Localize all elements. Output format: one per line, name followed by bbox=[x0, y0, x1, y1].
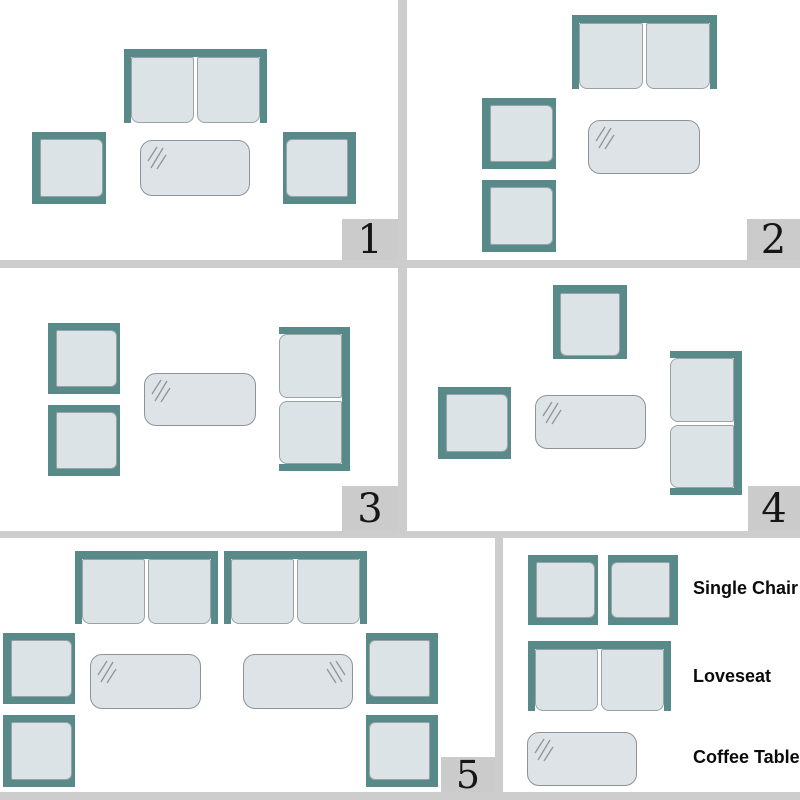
loveseat-frame bbox=[528, 641, 671, 649]
loveseat-cushion bbox=[231, 559, 294, 624]
legend-label-loveseat: Loveseat bbox=[693, 666, 771, 687]
loveseat-cushion bbox=[646, 23, 710, 89]
loveseat-cushion bbox=[82, 559, 145, 624]
panel-2-number-badge: 2 bbox=[747, 219, 800, 260]
loveseat bbox=[279, 327, 350, 471]
panel-1-number-badge: 1 bbox=[342, 219, 398, 260]
chair-cushion bbox=[446, 394, 508, 452]
single-chair bbox=[48, 405, 120, 476]
chair-cushion bbox=[490, 187, 553, 245]
loveseat-frame bbox=[572, 15, 579, 89]
loveseat-frame bbox=[260, 49, 267, 123]
chair-cushion bbox=[11, 722, 72, 780]
coffee-table bbox=[140, 140, 250, 196]
loveseat-cushion bbox=[670, 358, 734, 422]
glass-shine-icon bbox=[95, 658, 125, 686]
single-chair bbox=[528, 555, 598, 625]
loveseat-frame bbox=[664, 641, 671, 711]
loveseat-frame bbox=[710, 15, 717, 89]
single-chair bbox=[553, 285, 627, 359]
single-chair bbox=[482, 98, 556, 169]
loveseat bbox=[124, 49, 267, 123]
single-chair bbox=[32, 132, 106, 204]
coffee-table bbox=[588, 120, 700, 174]
coffee-table bbox=[527, 732, 637, 786]
loveseat-cushion bbox=[670, 425, 734, 489]
glass-shine-icon bbox=[318, 658, 348, 686]
chair-cushion bbox=[286, 139, 348, 197]
loveseat-frame bbox=[670, 488, 742, 495]
loveseat-frame bbox=[124, 49, 131, 123]
chair-cushion bbox=[56, 412, 117, 469]
coffee-table bbox=[243, 654, 353, 709]
loveseat-frame bbox=[670, 351, 742, 358]
legend-label-single-chair: Single Chair bbox=[693, 578, 798, 599]
single-chair bbox=[366, 715, 438, 787]
loveseat-frame bbox=[75, 551, 82, 624]
glass-shine-icon bbox=[145, 144, 175, 172]
loveseat-frame bbox=[279, 464, 350, 471]
loveseat bbox=[75, 551, 218, 624]
loveseat-frame bbox=[124, 49, 267, 57]
panel-5-number-badge: 5 bbox=[441, 757, 495, 792]
glass-shine-icon bbox=[532, 736, 562, 764]
single-chair bbox=[48, 323, 120, 394]
chair-cushion bbox=[369, 722, 430, 780]
single-chair bbox=[366, 633, 438, 704]
single-chair bbox=[608, 555, 678, 625]
loveseat-frame bbox=[224, 551, 367, 559]
loveseat bbox=[224, 551, 367, 624]
chair-cushion bbox=[490, 105, 553, 162]
chair-cushion bbox=[11, 640, 72, 697]
single-chair bbox=[283, 132, 356, 204]
single-chair bbox=[482, 180, 556, 252]
loveseat-cushion bbox=[297, 559, 360, 624]
loveseat bbox=[572, 15, 717, 89]
loveseat-cushion bbox=[279, 401, 342, 465]
glass-shine-icon bbox=[540, 399, 570, 427]
panel-4-number-badge: 4 bbox=[748, 486, 800, 531]
loveseat-frame bbox=[224, 551, 231, 624]
panel-3-number-badge: 3 bbox=[342, 486, 398, 531]
loveseat-cushion bbox=[148, 559, 211, 624]
loveseat-frame bbox=[342, 327, 350, 471]
chair-cushion bbox=[611, 562, 670, 618]
single-chair bbox=[3, 633, 75, 704]
glass-shine-icon bbox=[149, 377, 179, 405]
loveseat-cushion bbox=[601, 649, 664, 711]
loveseat-cushion bbox=[197, 57, 260, 123]
loveseat-frame bbox=[572, 15, 717, 23]
legend-label-coffee-table: Coffee Table bbox=[693, 747, 800, 768]
furniture-layer bbox=[0, 0, 800, 800]
loveseat-cushion bbox=[579, 23, 643, 89]
coffee-table bbox=[144, 373, 256, 426]
glass-shine-icon bbox=[593, 124, 623, 152]
furniture-layout-diagram: 1 2 3 4 5 Single Chair Loveseat Coffee T… bbox=[0, 0, 800, 800]
loveseat-frame bbox=[360, 551, 367, 624]
loveseat-frame bbox=[734, 351, 742, 495]
loveseat-cushion bbox=[279, 334, 342, 398]
loveseat bbox=[528, 641, 671, 711]
loveseat-frame bbox=[211, 551, 218, 624]
loveseat-frame bbox=[75, 551, 218, 559]
single-chair bbox=[438, 387, 511, 459]
loveseat-cushion bbox=[535, 649, 598, 711]
loveseat-cushion bbox=[131, 57, 194, 123]
single-chair bbox=[3, 715, 75, 787]
chair-cushion bbox=[40, 139, 103, 197]
coffee-table bbox=[90, 654, 201, 709]
coffee-table bbox=[535, 395, 646, 449]
chair-cushion bbox=[369, 640, 430, 697]
loveseat bbox=[670, 351, 742, 495]
loveseat-frame bbox=[528, 641, 535, 711]
loveseat-frame bbox=[279, 327, 350, 334]
chair-cushion bbox=[56, 330, 117, 387]
chair-cushion bbox=[560, 293, 620, 356]
chair-cushion bbox=[536, 562, 595, 618]
